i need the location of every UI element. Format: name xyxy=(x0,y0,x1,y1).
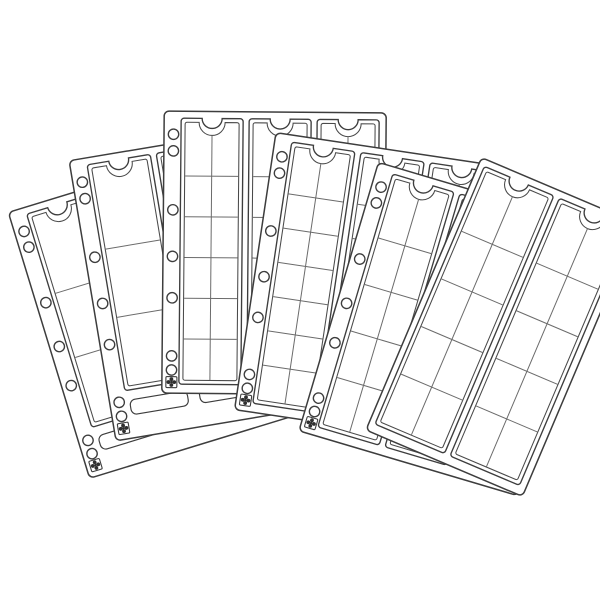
registration-mark-petal xyxy=(167,380,171,384)
registration-mark-icon xyxy=(117,422,130,435)
binder-hole-icon xyxy=(241,382,253,394)
binder-hole-icon xyxy=(276,151,288,163)
binder-hole-icon xyxy=(166,351,176,361)
binder-hole-icon xyxy=(274,167,286,179)
registration-mark-center xyxy=(170,381,172,383)
registration-mark-icon xyxy=(239,394,252,407)
binder-hole-icon xyxy=(252,312,264,324)
binder-hole-icon xyxy=(244,369,256,381)
binder-hole-icon xyxy=(265,225,277,237)
registration-mark-icon xyxy=(89,458,103,472)
product-illustration xyxy=(0,0,600,600)
binder-hole-icon xyxy=(167,251,177,261)
registration-mark-icon xyxy=(304,416,318,430)
registration-mark-petal xyxy=(172,380,176,384)
binder-hole-icon xyxy=(258,271,270,283)
registration-mark-petal xyxy=(169,383,173,387)
registration-mark-icon xyxy=(166,377,177,388)
binder-hole-icon xyxy=(166,365,176,375)
fanned-sheets-scene xyxy=(0,0,600,600)
binder-hole-icon xyxy=(168,205,178,215)
binder-hole-icon xyxy=(168,146,178,156)
binder-hole-icon xyxy=(168,129,178,139)
coin-pocket-strip xyxy=(179,118,243,385)
registration-mark-petal xyxy=(169,377,173,381)
binder-hole-icon xyxy=(167,293,177,303)
